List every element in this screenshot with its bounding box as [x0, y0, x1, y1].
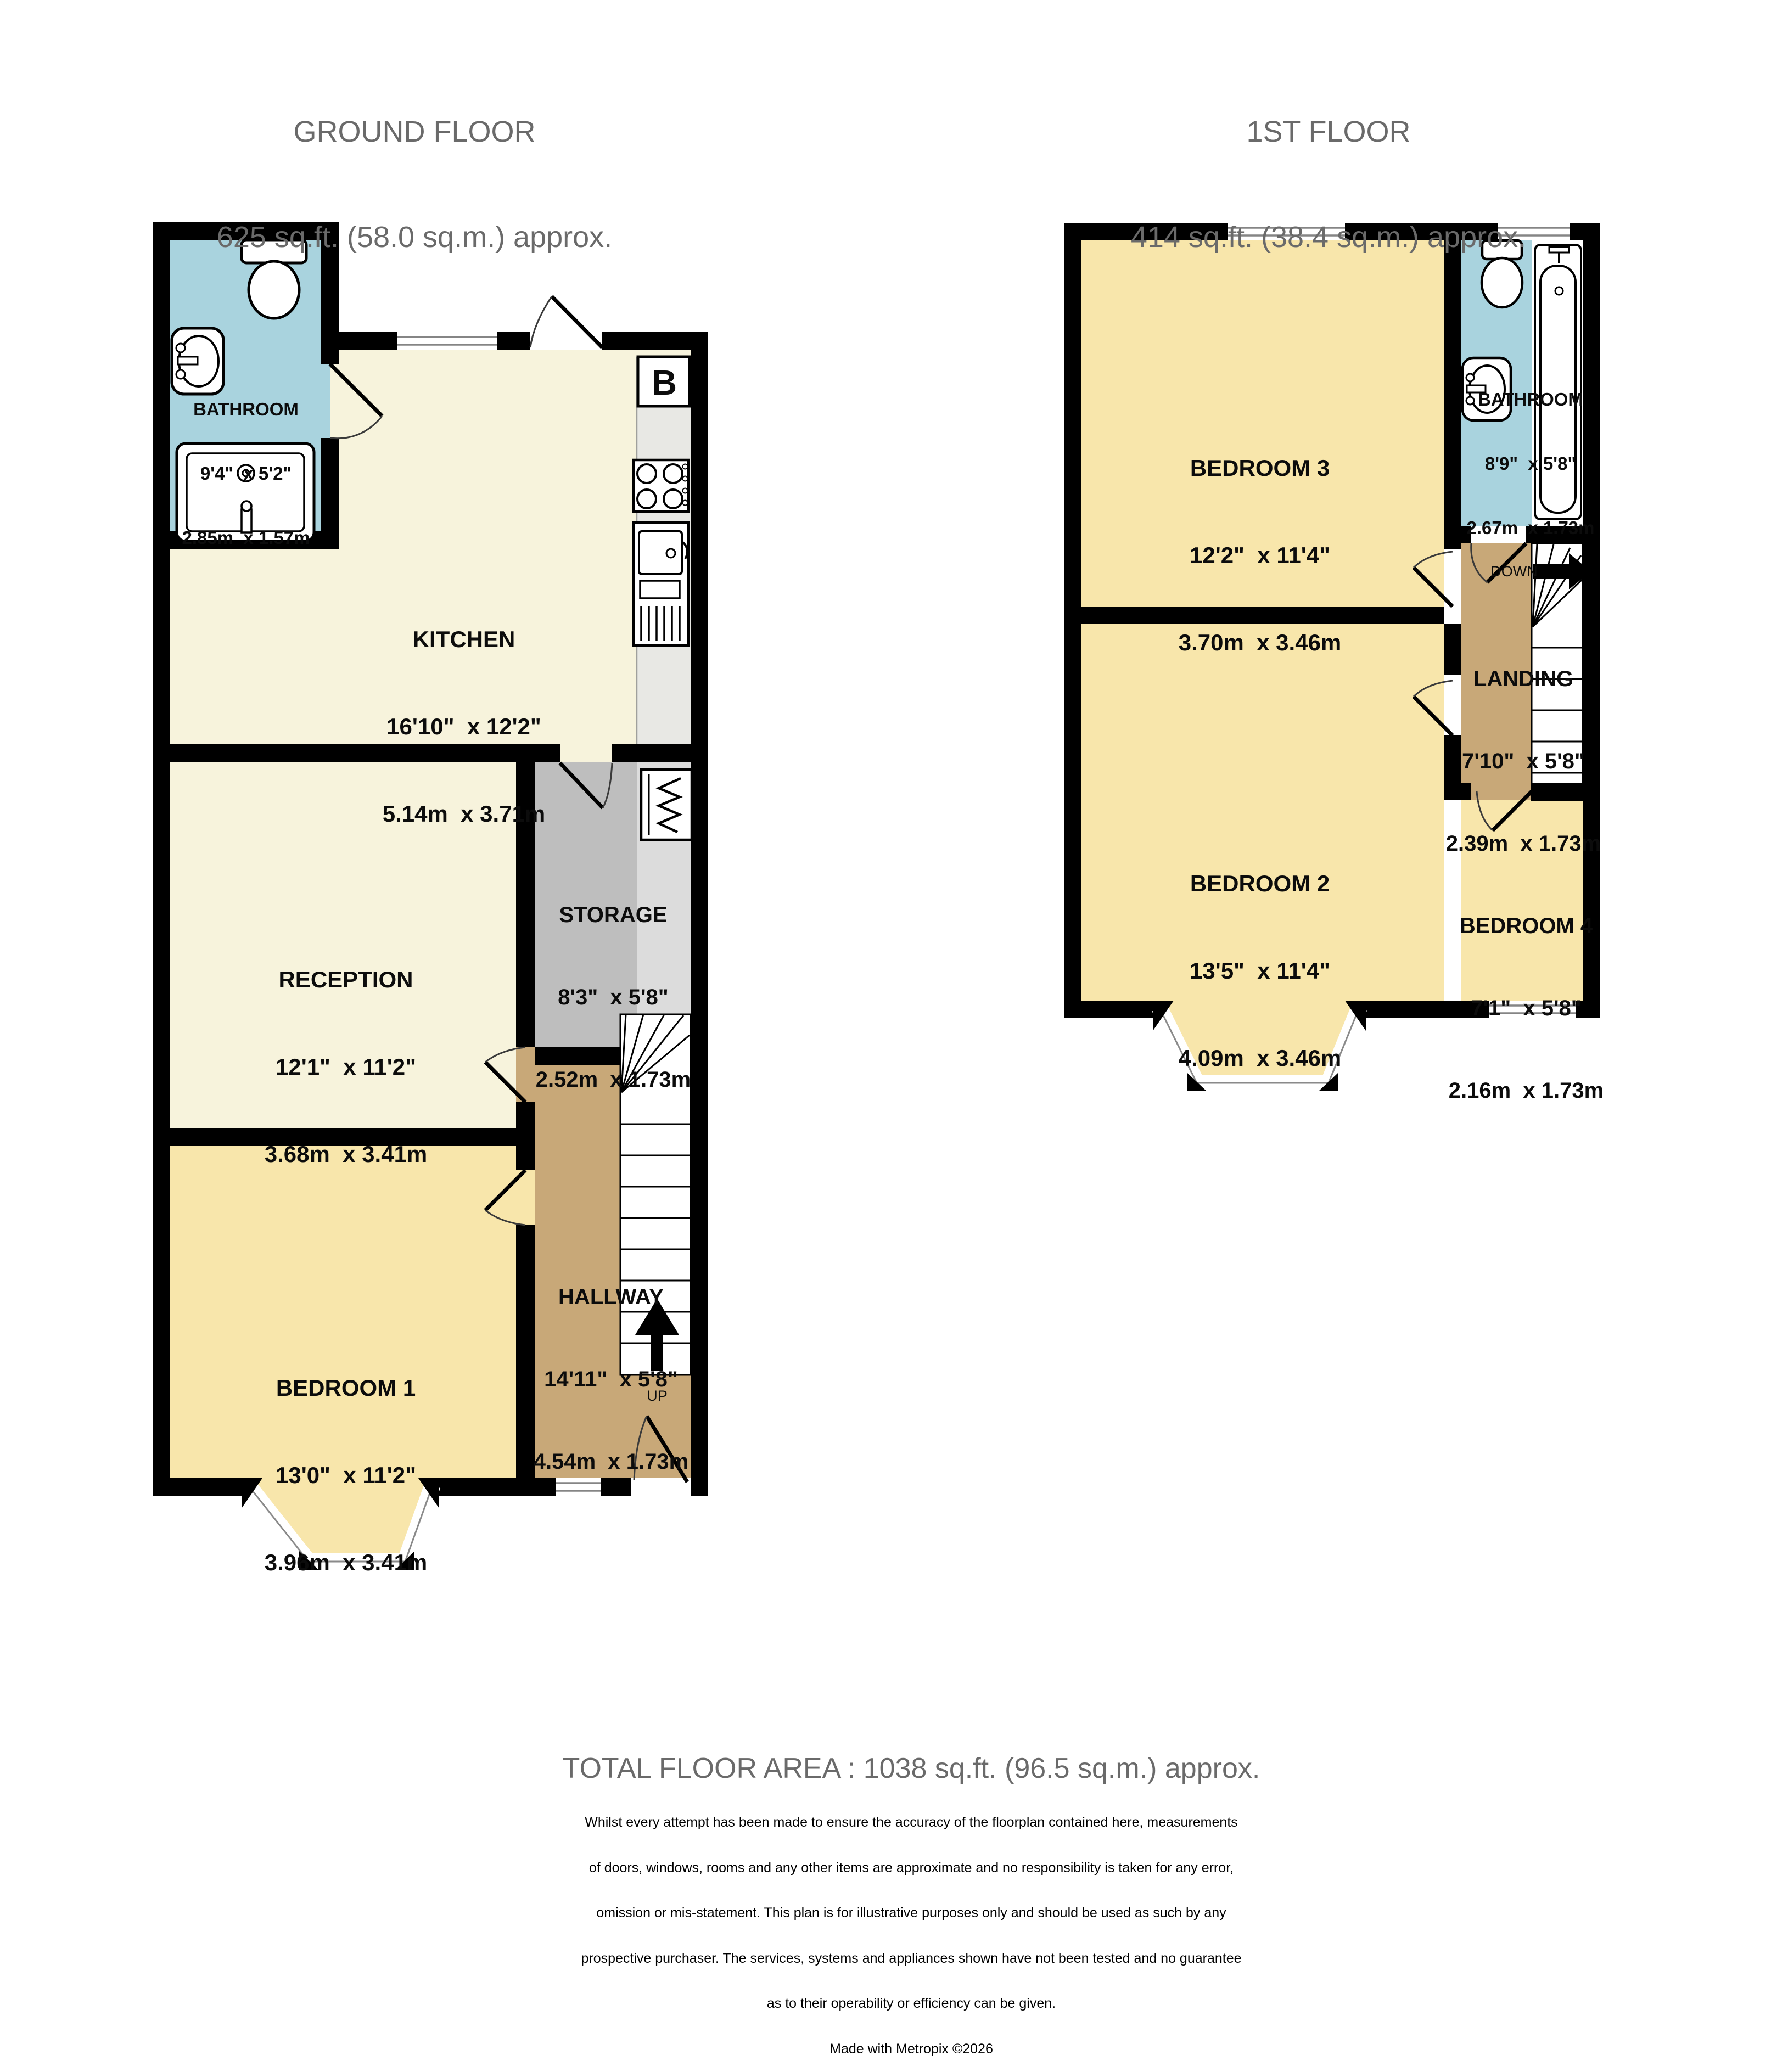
- room-dims-metric: 3.70m x 3.46m: [1179, 628, 1342, 657]
- ground-floor-header: GROUND FLOOR 625 sq.ft. (58.0 sq.m.) app…: [217, 44, 612, 290]
- down-label: DOWN: [1490, 563, 1537, 580]
- room-dims-imperial: 8'9" x 5'8": [1467, 453, 1595, 474]
- total-floor-area: TOTAL FLOOR AREA : 1038 sq.ft. (96.5 sq.…: [563, 1752, 1260, 1785]
- room-dims-metric: 2.85m x 1.57m: [182, 527, 310, 548]
- room-name: BATHROOM: [1467, 389, 1595, 410]
- first-floor-area: 414 sq.ft. (38.4 sq.m.) approx.: [1131, 220, 1526, 255]
- room-label-bedroom-1: BEDROOM 1 13'0" x 11'2" 3.96m x 3.41m: [265, 1315, 428, 1606]
- room-dims-imperial: 16'10" x 12'2": [383, 712, 546, 741]
- room-name: LANDING: [1446, 665, 1601, 693]
- room-name: KITCHEN: [383, 625, 546, 654]
- room-label-kitchen: KITCHEN 16'10" x 12'2" 5.14m x 3.71m: [383, 566, 546, 857]
- room-label-storage: STORAGE 8'3" x 5'8" 2.52m x 1.73m: [536, 846, 691, 1121]
- room-label-bedroom-3: BEDROOM 3 12'2" x 11'4" 3.70m x 3.46m: [1179, 395, 1342, 686]
- disclaimer-line: of doors, windows, rooms and any other i…: [581, 1861, 1241, 1876]
- disclaimer-line: Whilst every attempt has been made to en…: [581, 1815, 1241, 1830]
- kitchen-sink-icon: [634, 523, 688, 645]
- room-name: STORAGE: [536, 901, 691, 929]
- room-dims-metric: 2.52m x 1.73m: [536, 1066, 691, 1093]
- disclaimer-line: prospective purchaser. The services, sys…: [581, 1951, 1241, 1967]
- room-dims-metric: 2.39m x 1.73m: [1446, 830, 1601, 857]
- first-floor-title: 1ST FLOOR: [1131, 114, 1526, 149]
- ground-floor-title: GROUND FLOOR: [217, 114, 612, 149]
- credit-line: Made with Metropix ©2026: [581, 2042, 1241, 2057]
- boiler-label: B: [652, 362, 677, 403]
- room-dims-imperial: 13'0" x 11'2": [265, 1461, 428, 1490]
- room-name: BEDROOM 4: [1449, 912, 1604, 940]
- fuse-box-icon: [641, 770, 692, 840]
- room-dims-metric: 4.09m x 3.46m: [1179, 1043, 1342, 1073]
- up-label: UP: [647, 1388, 668, 1405]
- room-label-landing: LANDING 7'10" x 5'8" 2.39m x 1.73m: [1446, 610, 1601, 885]
- room-label-reception: RECEPTION 12'1" x 11'2" 3.68m x 3.41m: [265, 907, 428, 1198]
- room-name: BEDROOM 1: [265, 1373, 428, 1402]
- ground-floor-area: 625 sq.ft. (58.0 sq.m.) approx.: [217, 220, 612, 255]
- room-label-bedroom-2: BEDROOM 2 13'5" x 11'4" 4.09m x 3.46m: [1179, 811, 1342, 1102]
- room-dims-metric: 4.54m x 1.73m: [534, 1448, 688, 1475]
- room-dims-imperial: 13'5" x 11'4": [1179, 956, 1342, 985]
- room-name: BEDROOM 3: [1179, 453, 1342, 482]
- disclaimer-line: as to their operability or efficiency ca…: [581, 1996, 1241, 2012]
- room-dims-metric: 3.96m x 3.41m: [265, 1548, 428, 1577]
- room-dims-imperial: 7'10" x 5'8": [1446, 748, 1601, 775]
- window-kitchen-top: [397, 332, 497, 350]
- room-name: HALLWAY: [534, 1283, 688, 1311]
- disclaimer-line: omission or mis-statement. This plan is …: [581, 1906, 1241, 1921]
- room-name: RECEPTION: [265, 965, 428, 994]
- room-label-bathroom-ground: BATHROOM 9'4" x 5'2" 2.85m x 1.57m: [182, 356, 310, 570]
- room-dims-imperial: 12'1" x 11'2": [265, 1052, 428, 1081]
- room-label-bedroom-4: BEDROOM 4 7'1" x 5'8" 2.16m x 1.73m: [1449, 857, 1604, 1132]
- room-label-hallway: HALLWAY 14'11" x 5'8" 4.54m x 1.73m: [534, 1228, 688, 1503]
- room-dims-metric: 5.14m x 3.71m: [383, 799, 546, 828]
- room-dims-imperial: 12'2" x 11'4": [1179, 541, 1342, 570]
- room-dims-metric: 2.67m x 1.73m: [1467, 517, 1595, 538]
- room-name: BEDROOM 2: [1179, 869, 1342, 898]
- room-dims-imperial: 9'4" x 5'2": [182, 463, 310, 484]
- first-floor-header: 1ST FLOOR 414 sq.ft. (38.4 sq.m.) approx…: [1131, 44, 1526, 290]
- stove-icon: [634, 460, 688, 512]
- disclaimer: Whilst every attempt has been made to en…: [581, 1785, 1241, 2072]
- room-dims-metric: 3.68m x 3.41m: [265, 1139, 428, 1169]
- room-dims-imperial: 7'1" x 5'8": [1449, 995, 1604, 1022]
- door-kitchen-back: [530, 296, 602, 347]
- room-dims-imperial: 8'3" x 5'8": [536, 984, 691, 1011]
- room-name: BATHROOM: [182, 398, 310, 420]
- room-label-bathroom-first: BATHROOM 8'9" x 5'8" 2.67m x 1.73m: [1467, 346, 1595, 560]
- room-dims-metric: 2.16m x 1.73m: [1449, 1077, 1604, 1104]
